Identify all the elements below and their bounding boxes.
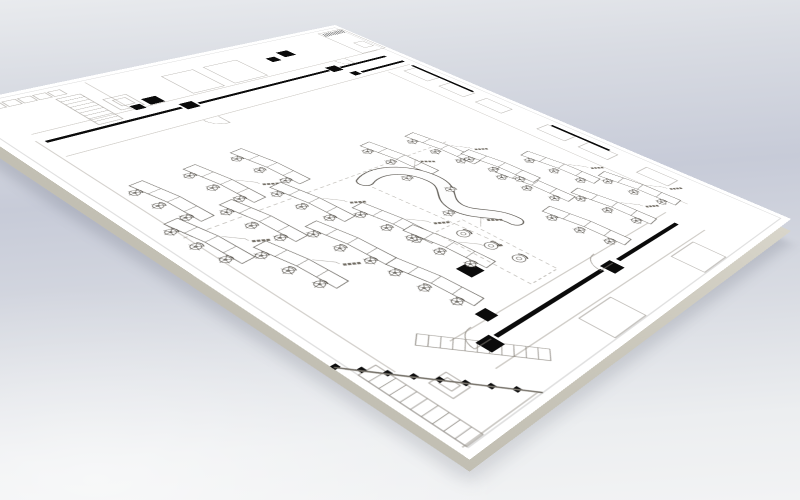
glyph-mark — [446, 221, 450, 223]
column — [475, 308, 499, 322]
stair-tread — [410, 398, 427, 409]
office-chair-icon — [413, 282, 434, 294]
glyph-mark — [597, 167, 601, 169]
stair-tread — [432, 413, 449, 424]
glyph-mark — [256, 240, 260, 242]
leader-line — [472, 218, 490, 227]
glyph-mark — [271, 183, 275, 185]
desk-outline — [230, 148, 313, 184]
office-chair-icon — [377, 223, 397, 233]
column — [141, 96, 165, 105]
office-chair-icon — [147, 201, 169, 211]
office-chair-icon — [429, 246, 449, 257]
stair-tread — [389, 385, 406, 396]
glyph-mark — [350, 202, 354, 204]
room-outline — [0, 103, 7, 110]
office-chair-icon — [291, 202, 311, 211]
glyph-mark — [652, 205, 656, 207]
glyph-mark — [362, 201, 366, 203]
glyph-mark — [433, 222, 437, 224]
glyph-mark — [669, 188, 673, 190]
hatch-strip — [321, 30, 347, 37]
wall-segment — [551, 125, 611, 151]
label-glyphs — [420, 161, 435, 162]
glyph-mark — [481, 148, 485, 149]
glyph-mark — [252, 240, 256, 242]
desk-outline — [571, 187, 658, 224]
room-outline — [112, 97, 135, 106]
label-glyphs — [669, 187, 683, 189]
label-glyphs — [343, 262, 362, 266]
office-chair-icon — [240, 221, 261, 231]
desk-cluster — [486, 166, 577, 206]
column — [475, 335, 505, 353]
office-chair-icon — [202, 183, 222, 192]
glyph-mark — [262, 183, 266, 185]
desk-outline — [163, 217, 257, 263]
corridor-line — [85, 83, 132, 110]
column — [600, 260, 625, 274]
corridor-line — [450, 212, 666, 341]
room-outline — [2, 99, 22, 106]
glyph-mark — [347, 263, 352, 265]
corridor-line — [32, 50, 378, 134]
stair-tread — [444, 420, 461, 432]
stair-tread — [400, 392, 417, 403]
glyph-mark — [679, 187, 683, 189]
stair-tread — [428, 335, 429, 346]
glyph-mark — [672, 188, 676, 190]
glyph-mark — [485, 148, 489, 149]
glyph-mark — [357, 262, 362, 264]
label-glyphs — [590, 167, 604, 169]
room-outline — [318, 29, 385, 53]
glyph-mark — [428, 161, 432, 162]
room-outline — [429, 372, 471, 398]
glyph-mark — [437, 222, 441, 224]
corridor-line — [66, 64, 410, 156]
armchair-icon — [482, 240, 502, 250]
glyph-mark — [478, 148, 482, 149]
furniture — [94, 86, 705, 388]
stair-tread — [421, 405, 438, 416]
desk-outline — [493, 166, 577, 201]
room-outline — [17, 96, 37, 103]
room-outline — [475, 98, 512, 113]
wall-segment — [197, 70, 330, 104]
office-chair-icon — [277, 265, 299, 277]
room-outline — [33, 93, 53, 100]
column — [276, 50, 296, 57]
label-glyphs — [433, 221, 450, 224]
wall-segment — [360, 60, 405, 72]
stair-tread — [455, 427, 472, 439]
glyph-mark — [487, 219, 491, 221]
stair-tread — [440, 337, 441, 349]
lounge-outline — [435, 220, 558, 284]
corridor-line — [496, 230, 705, 369]
glyph-mark — [474, 149, 478, 150]
glyph-mark — [343, 263, 348, 265]
room-outline — [637, 167, 678, 186]
desk-cluster — [535, 205, 632, 250]
wall-segment — [45, 107, 183, 143]
glyph-mark — [442, 222, 446, 224]
glyph-mark — [645, 206, 649, 208]
glyph-mark — [420, 161, 424, 162]
glyph-mark — [590, 167, 594, 169]
glyph-mark — [432, 161, 436, 162]
glyph-mark — [424, 161, 428, 162]
column — [266, 57, 282, 62]
armchair-icon — [509, 253, 529, 264]
glyph-mark — [267, 183, 271, 185]
viewport-background — [0, 0, 800, 500]
office-chair-icon — [184, 241, 207, 252]
desk-cluster — [117, 180, 217, 227]
door-arc-icon — [204, 116, 231, 126]
glyph-mark — [648, 205, 652, 207]
stair-outline — [56, 94, 123, 125]
room-outline — [354, 41, 374, 48]
stair-tread — [538, 348, 539, 360]
wall-segment — [339, 56, 387, 69]
room-outline — [203, 60, 267, 83]
glyph-mark — [594, 167, 598, 169]
column — [129, 104, 146, 110]
glyph-mark — [266, 239, 270, 241]
room-outline — [47, 90, 66, 97]
desk-outline — [542, 205, 633, 245]
label-glyphs — [474, 148, 488, 150]
glyph-mark — [675, 188, 679, 190]
desk-outline — [269, 181, 357, 221]
label-glyphs — [645, 205, 659, 208]
office-chair-icon — [250, 166, 269, 174]
glyph-mark — [491, 219, 495, 221]
desk-outline — [129, 180, 217, 222]
room-outline — [579, 297, 646, 338]
staircase — [56, 94, 123, 125]
armchair-icon — [454, 228, 474, 238]
wall-segment — [493, 269, 604, 338]
glyph-mark — [352, 262, 357, 264]
corner-room-outline — [345, 325, 538, 448]
glyph-mark — [655, 205, 659, 207]
column — [349, 71, 362, 76]
wall-segment — [411, 65, 474, 92]
stair-tread — [379, 378, 396, 388]
glyph-mark — [354, 201, 358, 203]
office-chair-icon — [329, 243, 350, 254]
